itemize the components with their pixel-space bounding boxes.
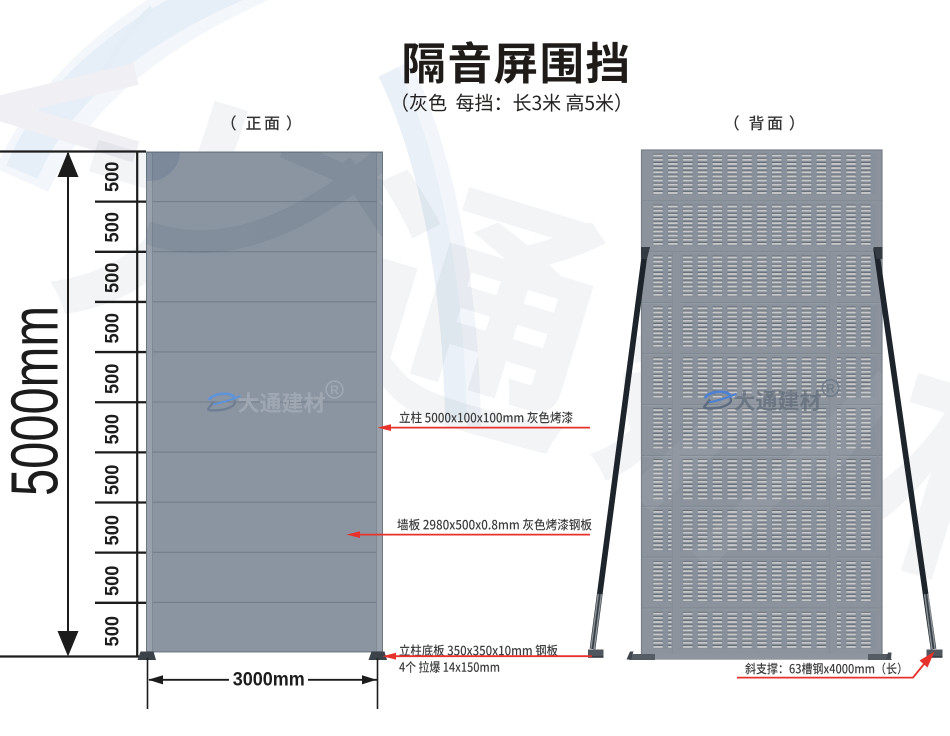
svg-text:500: 500 [102,161,124,192]
svg-text:5000mm: 5000mm [0,306,73,496]
svg-text:500: 500 [102,363,124,394]
svg-text:500: 500 [102,212,124,243]
svg-text:500: 500 [102,464,124,495]
svg-text:500: 500 [102,414,124,445]
svg-text:R: R [826,382,835,396]
svg-text:500: 500 [102,262,124,293]
svg-text:R: R [330,383,339,397]
svg-text:500: 500 [102,565,124,596]
svg-text:500: 500 [102,313,124,344]
svg-text:500: 500 [102,616,124,647]
svg-text:3000mm: 3000mm [233,669,305,690]
svg-text:500: 500 [102,515,124,546]
